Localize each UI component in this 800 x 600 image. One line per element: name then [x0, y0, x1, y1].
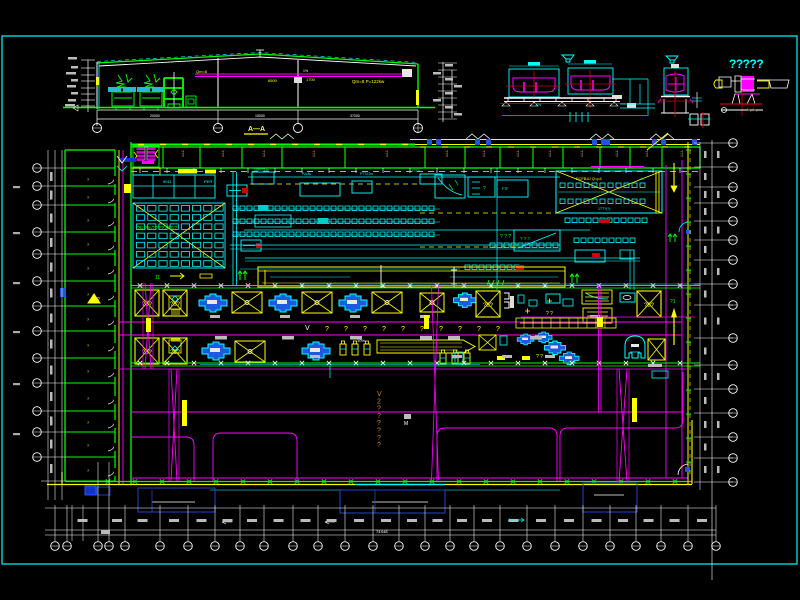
svg-text:FCFB4J Q=p4: FCFB4J Q=p4 — [576, 176, 602, 181]
svg-text:M: M — [404, 421, 408, 427]
svg-text:Qm=8: Qm=8 — [196, 69, 208, 74]
svg-text:1TT?(?): 1TT?(?) — [598, 207, 610, 211]
svg-text:PTT4.2m: PTT4.2m — [360, 172, 373, 176]
svg-text:???: ??? — [180, 150, 185, 158]
svg-text:?: ? — [496, 326, 500, 333]
svg-text:?: ? — [458, 326, 462, 333]
svg-text:???: ??? — [515, 150, 520, 158]
svg-text:???: ??? — [614, 150, 619, 158]
svg-text:20000: 20000 — [150, 114, 160, 118]
svg-text:?: ? — [439, 326, 443, 333]
svg-text:???: ??? — [384, 150, 389, 158]
svg-text:?: ? — [325, 326, 329, 333]
svg-text:74X48: 74X48 — [376, 529, 388, 534]
svg-text:FTT8: FTT8 — [412, 169, 420, 173]
svg-text:FTF: FTF — [502, 187, 508, 191]
svg-text:???: ??? — [547, 150, 552, 158]
svg-text:? ?: ? ? — [536, 354, 543, 360]
svg-text:V: V — [305, 325, 310, 332]
svg-text:? ? ?: ? ? ? — [500, 234, 511, 240]
svg-text:2: 2 — [377, 398, 381, 405]
svg-text:???: ??? — [444, 150, 449, 158]
svg-text:?: ? — [483, 186, 486, 192]
svg-text:?: ? — [363, 326, 367, 333]
svg-text:? ? ?: ? ? ? — [520, 236, 531, 241]
svg-text:?: ? — [377, 442, 381, 449]
svg-text:1%: 1% — [536, 103, 541, 107]
svg-text:? ?: ? ? — [546, 311, 553, 317]
svg-text:Qm=8 P=122kw: Qm=8 P=122kw — [352, 79, 385, 84]
svg-text:15000: 15000 — [255, 114, 265, 118]
svg-text:?????: ????? — [729, 57, 763, 71]
svg-text:?: ? — [377, 413, 381, 420]
svg-text:?: ? — [344, 326, 348, 333]
svg-text:A L: A L — [508, 517, 515, 522]
svg-text:9011: 9011 — [163, 179, 172, 184]
svg-text:1700: 1700 — [306, 77, 316, 82]
svg-text:4k: 4k — [640, 177, 644, 181]
svg-text:11: 11 — [155, 275, 160, 281]
svg-text:6500: 6500 — [268, 78, 278, 83]
svg-text:???: ??? — [644, 150, 649, 158]
svg-text:???: ??? — [579, 150, 584, 158]
svg-text:?: ? — [477, 326, 481, 333]
svg-text:?: ? — [377, 435, 381, 442]
svg-text:?: ? — [382, 326, 386, 333]
svg-text:37000: 37000 — [350, 114, 360, 118]
svg-text:?: ? — [377, 406, 381, 413]
svg-text:?: ? — [401, 326, 405, 333]
svg-text:PER: PER — [204, 179, 212, 184]
svg-text:1%: 1% — [303, 69, 308, 73]
svg-text:?: ? — [97, 297, 100, 303]
svg-text:?1: ?1 — [670, 299, 676, 305]
svg-text:1XPTT1m: 1XPTT1m — [254, 168, 269, 172]
svg-text:???: ??? — [481, 150, 486, 158]
svg-text:?: ? — [377, 420, 381, 427]
svg-text:???: ??? — [679, 150, 684, 158]
svg-text:?E?%??????©?: ?E?%??????©? — [137, 225, 177, 232]
svg-text:???: ??? — [220, 150, 225, 158]
svg-text:P2L8u: P2L8u — [302, 172, 311, 176]
svg-text:V: V — [377, 391, 382, 398]
svg-text:???: ??? — [311, 150, 316, 158]
svg-text:10%: 10% — [357, 338, 365, 343]
svg-text:?: ? — [420, 326, 424, 333]
svg-text:???: ??? — [261, 150, 266, 158]
svg-text:?: ? — [377, 428, 381, 435]
svg-text:A—A: A—A — [248, 126, 265, 133]
